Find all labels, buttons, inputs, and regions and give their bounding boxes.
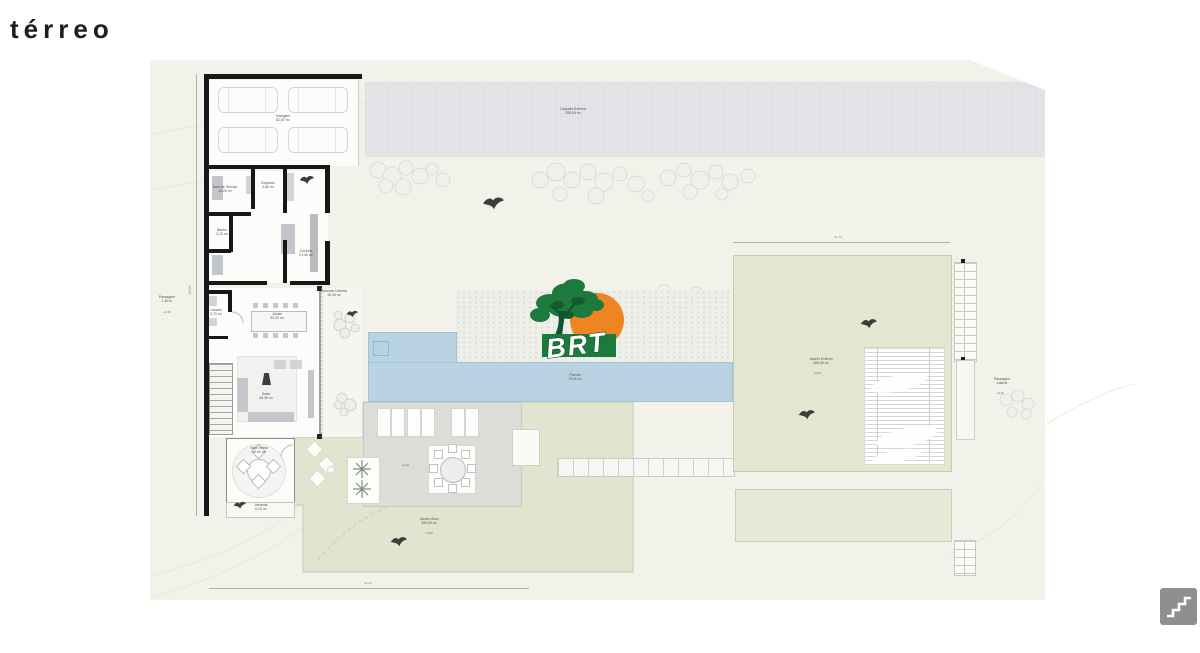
stairs-icon [1160,588,1197,625]
bird-icon [300,176,314,184]
bird-icon [483,197,504,209]
overlay-layer: BRT [0,0,1200,653]
brt-logo: BRT [530,279,624,364]
bird-icon [391,537,407,546]
bird-icon [861,319,877,328]
floor-plan-page: térreo [0,0,1200,653]
palm-plant [353,460,371,498]
bird-icon [234,502,246,509]
door-arcs [232,312,293,457]
logo-text: BRT [544,327,609,364]
stairs-icon-button[interactable] [1160,588,1197,625]
veranda-shrubs [334,311,359,416]
bird-icon [799,410,815,419]
